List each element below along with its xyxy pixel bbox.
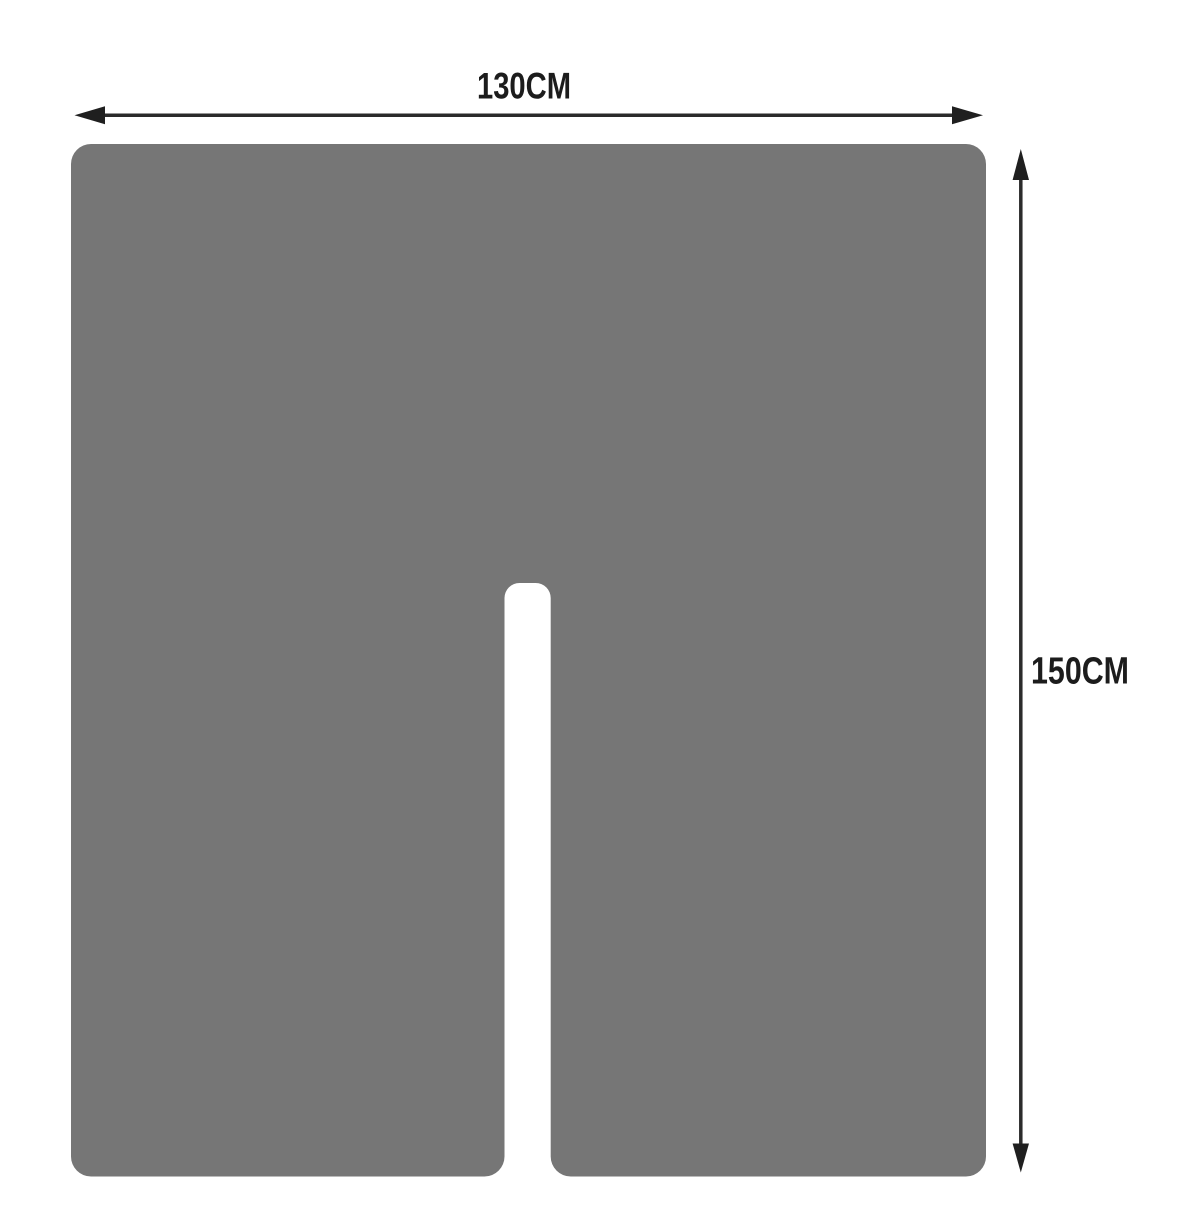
svg-text:150CM: 150CM <box>1031 651 1129 693</box>
svg-text:130CM: 130CM <box>477 66 571 107</box>
